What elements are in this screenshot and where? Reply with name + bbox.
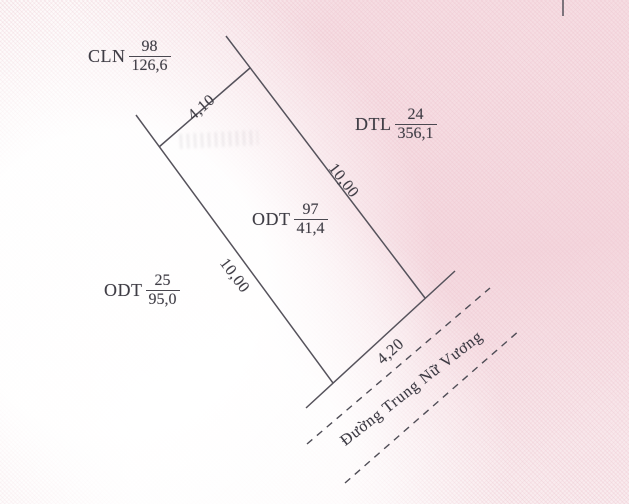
parcel-label-dtl-24: DTL 24 356,1 bbox=[355, 106, 437, 143]
parcel-code: CLN bbox=[88, 46, 126, 67]
parcel-number-area-fraction: 97 41,4 bbox=[294, 201, 328, 238]
parcel-number: 98 bbox=[137, 38, 163, 56]
parcel-number-area-fraction: 24 356,1 bbox=[395, 106, 437, 143]
parcel-area: 356,1 bbox=[395, 124, 437, 143]
parcel-edge-right bbox=[226, 36, 425, 298]
parcel-label-odt-97: ODT 97 41,4 bbox=[252, 201, 328, 238]
parcel-area: 126,6 bbox=[129, 56, 171, 75]
road-dashed-line-far bbox=[345, 330, 520, 483]
parcel-number: 97 bbox=[298, 201, 324, 219]
parcel-code: ODT bbox=[104, 280, 143, 301]
parcel-boundary-lines bbox=[0, 0, 629, 504]
parcel-code: DTL bbox=[355, 114, 392, 135]
road-dashed-line-near bbox=[307, 288, 490, 444]
parcel-label-odt-25: ODT 25 95,0 bbox=[104, 272, 180, 309]
parcel-number: 24 bbox=[403, 106, 429, 124]
parcel-number-area-fraction: 98 126,6 bbox=[129, 38, 171, 75]
parcel-area: 41,4 bbox=[294, 219, 328, 238]
parcel-edge-left bbox=[136, 115, 333, 383]
parcel-area: 95,0 bbox=[146, 290, 180, 309]
parcel-number-area-fraction: 25 95,0 bbox=[146, 272, 180, 309]
parcel-code: ODT bbox=[252, 209, 291, 230]
parcel-edge-bottom bbox=[306, 271, 455, 408]
parcel-number: 25 bbox=[150, 272, 176, 290]
cadastral-map: CLN 98 126,6 DTL 24 356,1 ODT 97 41,4 OD… bbox=[0, 0, 629, 504]
parcel-label-cln-98: CLN 98 126,6 bbox=[88, 38, 171, 75]
